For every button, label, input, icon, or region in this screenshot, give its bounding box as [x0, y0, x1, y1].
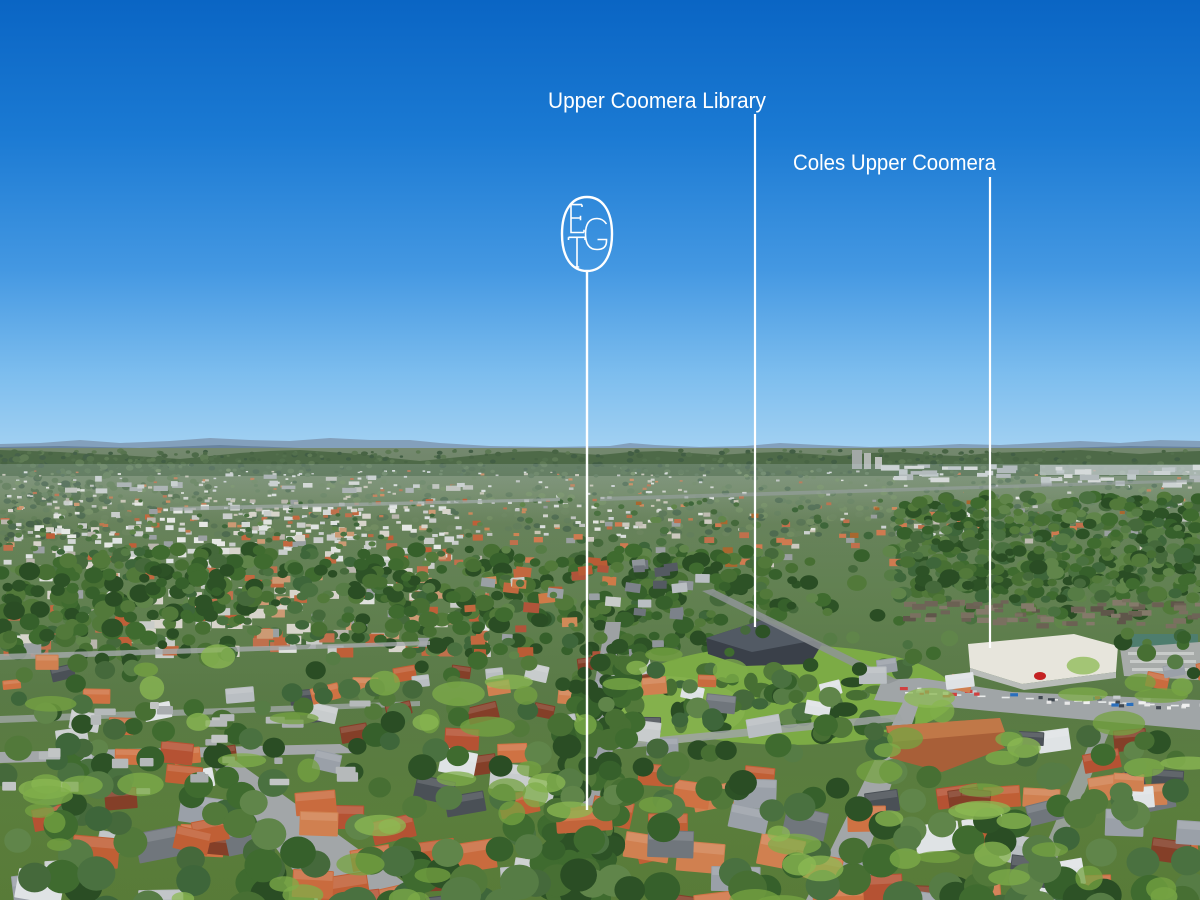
svg-text:Coles Upper Coomera: Coles Upper Coomera [793, 150, 996, 175]
svg-text:Upper Coomera Library: Upper Coomera Library [548, 88, 767, 113]
